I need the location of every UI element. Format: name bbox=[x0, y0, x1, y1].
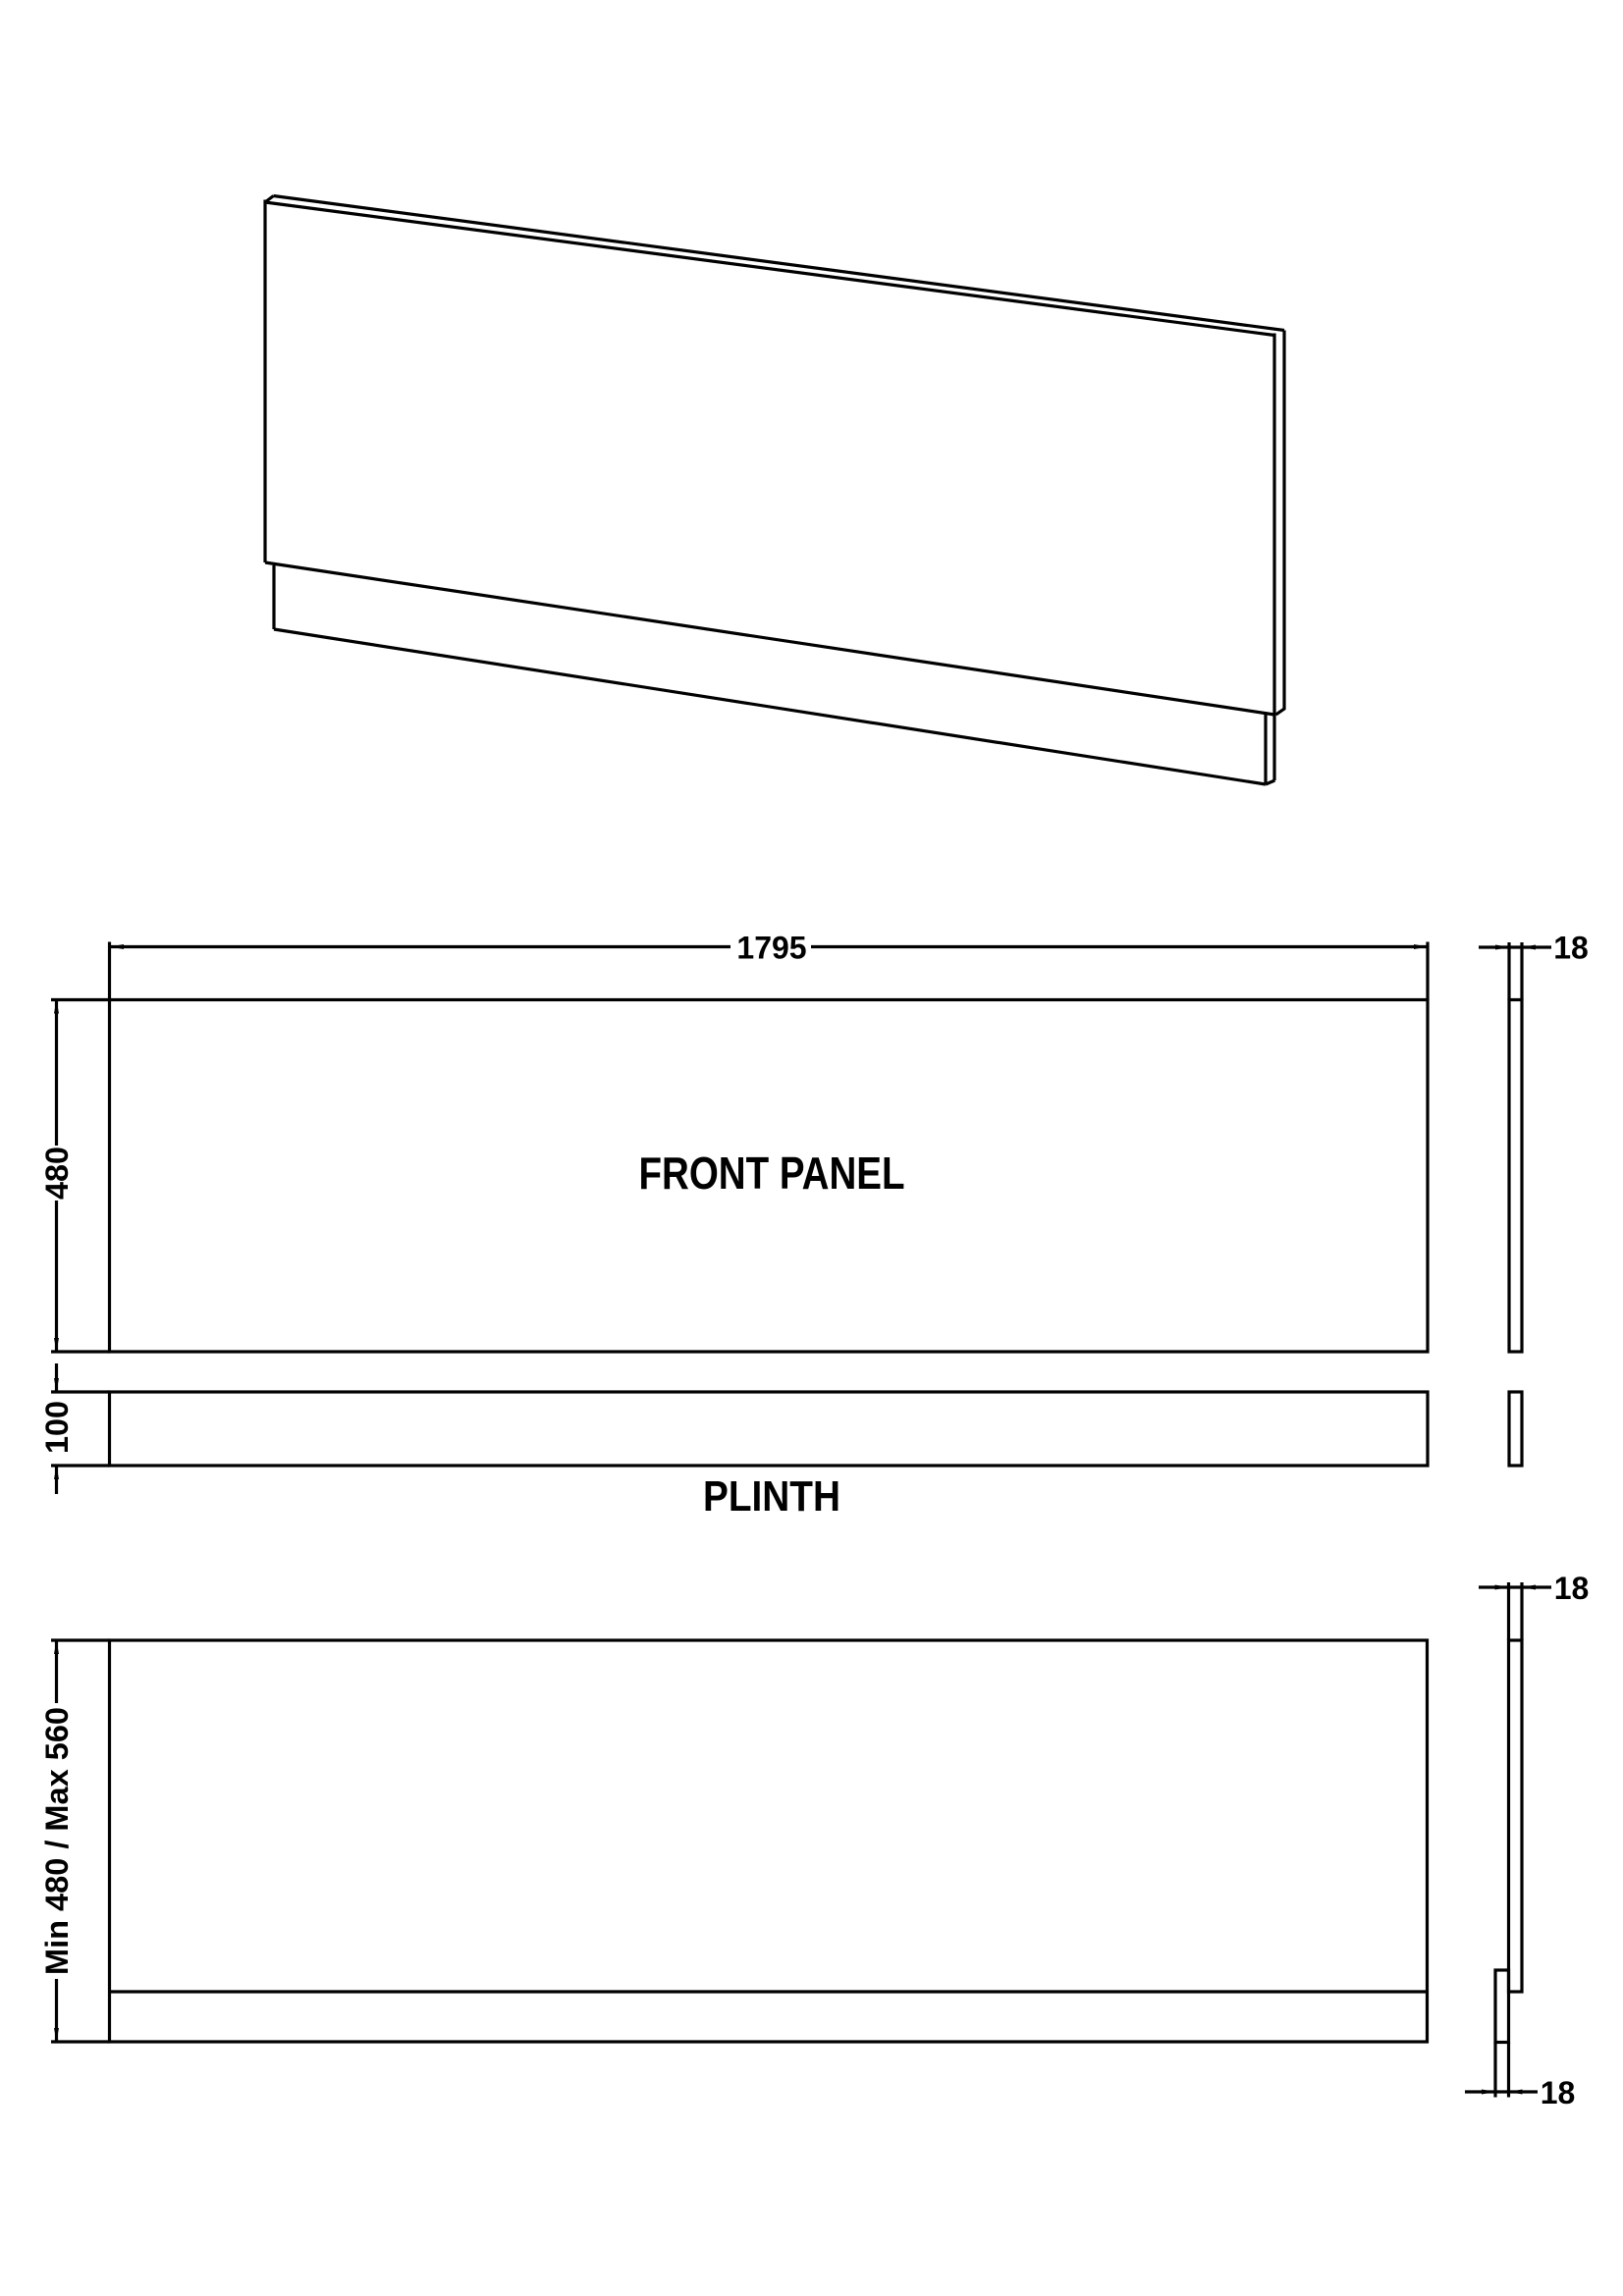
svg-text:FRONT PANEL: FRONT PANEL bbox=[639, 1148, 905, 1199]
svg-text:480: 480 bbox=[39, 1147, 75, 1200]
svg-text:18: 18 bbox=[1541, 2075, 1576, 2110]
svg-text:18: 18 bbox=[1553, 931, 1589, 966]
svg-text:1795: 1795 bbox=[736, 931, 806, 966]
svg-text:18: 18 bbox=[1554, 1571, 1590, 1606]
svg-text:Min 480 / Max 560: Min 480 / Max 560 bbox=[39, 1707, 75, 1975]
svg-text:100: 100 bbox=[39, 1401, 75, 1454]
svg-text:PLINTH: PLINTH bbox=[703, 1472, 840, 1521]
